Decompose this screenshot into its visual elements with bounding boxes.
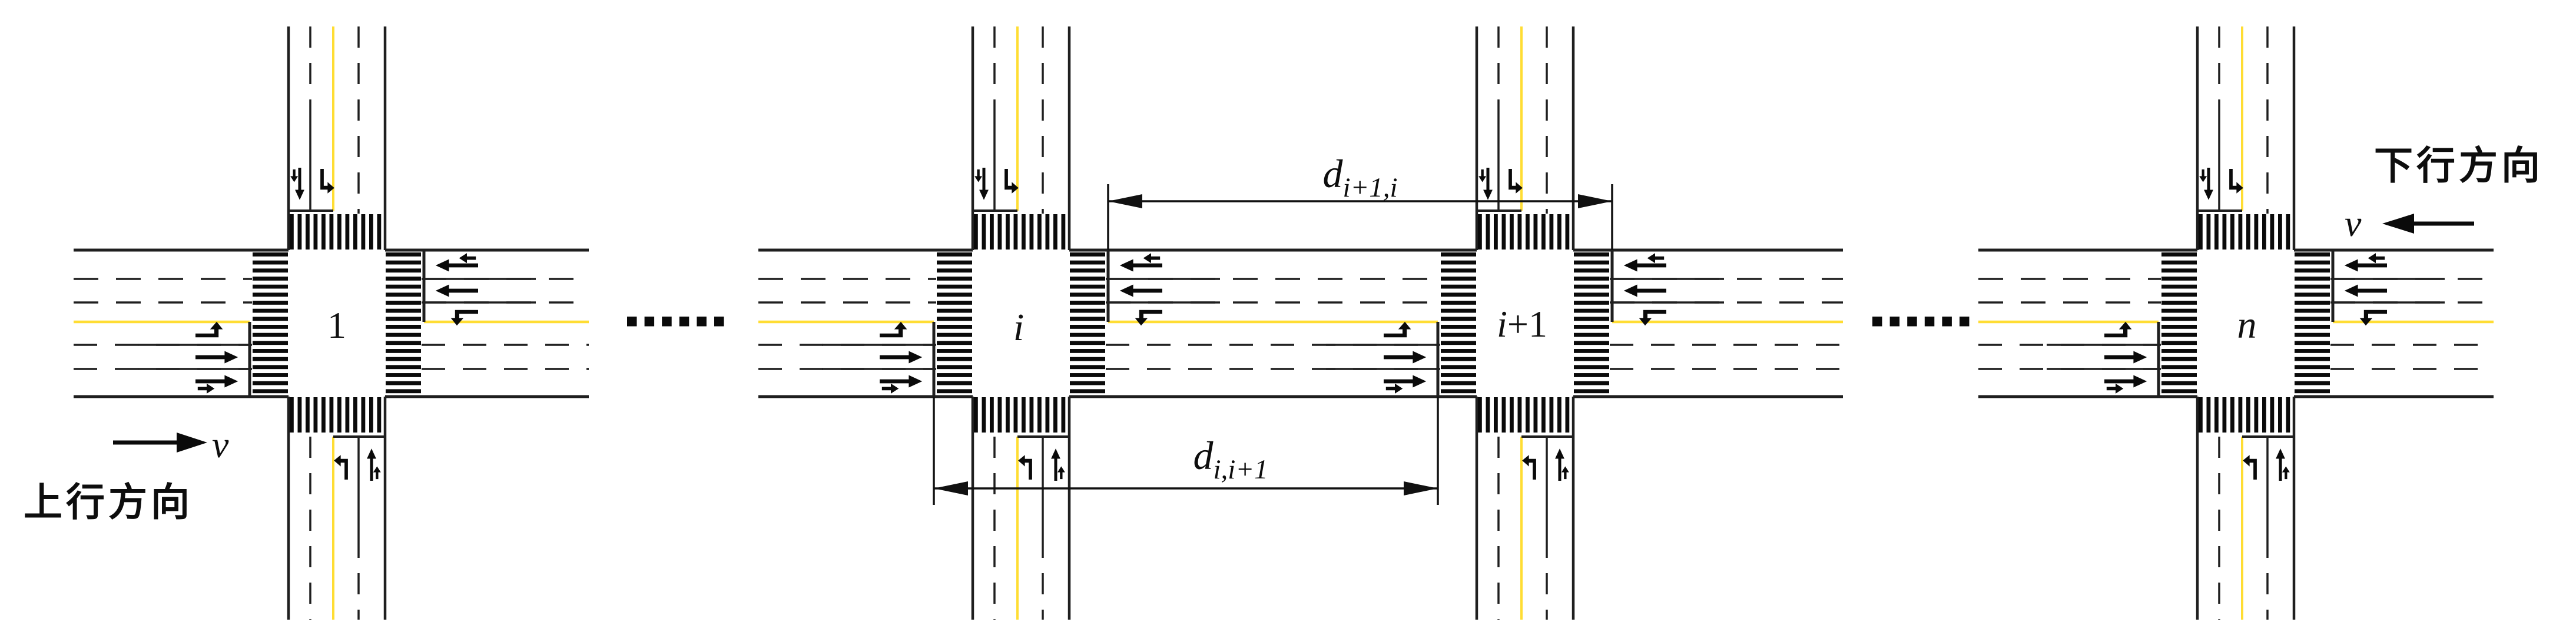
- crosswalk-north-stripe: [998, 214, 1002, 250]
- crosswalk-east-stripe: [386, 268, 421, 272]
- crosswalk-east-stripe: [1070, 365, 1105, 369]
- lane-marking-straight-uturn-arrow-icon-glyph: [2282, 467, 2290, 480]
- crosswalk-east-stripe: [386, 285, 421, 289]
- crosswalk-south-stripe: [377, 397, 382, 433]
- lane-marking-left-turn-arrow-icon: [334, 455, 348, 480]
- upstream-direction-label: 上行方向: [24, 481, 193, 524]
- crosswalk-east-stripe: [386, 381, 421, 385]
- lane-marking-straight-uturn-arrow-icon-glyph: [1386, 384, 1403, 394]
- crosswalk-east-stripe: [386, 301, 421, 305]
- lane-marking-straight-uturn-arrow-icon-glyph: [2345, 260, 2387, 272]
- crosswalk-east-stripe: [386, 277, 421, 281]
- dimension-arrowhead-right-icon: [1404, 481, 1438, 495]
- intersection-i-plus-1-label: i+1: [1497, 303, 1547, 345]
- crosswalk-north-stripe: [2246, 214, 2250, 250]
- crosswalk-east-stripe: [1574, 381, 1609, 385]
- lane-marking-straight-uturn-arrow-icon-glyph: [2276, 448, 2285, 481]
- lane-marking-straight-uturn-arrow-icon-glyph: [373, 467, 381, 480]
- crosswalk-west-stripe: [1441, 285, 1476, 289]
- crosswalk-east-stripe: [1070, 261, 1105, 265]
- crosswalk-east-stripe: [386, 357, 421, 361]
- crosswalk-east-stripe: [1070, 292, 1105, 297]
- crosswalk-south-stripe: [314, 397, 318, 433]
- crosswalk-south-stripe: [2286, 397, 2290, 433]
- crosswalk-west-stripe: [937, 373, 972, 377]
- crosswalk-east-stripe: [1574, 357, 1609, 361]
- road-geometry-layer: [74, 26, 2494, 620]
- crosswalk-south-stripe: [1478, 397, 1482, 433]
- crosswalk-south-stripe: [2246, 397, 2250, 433]
- lane-marking-left-turn-arrow-icon: [195, 322, 223, 337]
- crosswalk-west-stripe: [253, 325, 288, 329]
- crosswalk-east-stripe: [1070, 373, 1105, 377]
- ellipsis-right-icon: [1942, 317, 1952, 327]
- lane-marking-left-turn-arrow-icon-glyph: [2104, 322, 2131, 337]
- lane-marking-left-turn-arrow-icon: [2104, 322, 2131, 337]
- crosswalk-south-stripe: [321, 397, 326, 433]
- crosswalk-south-stripe: [990, 397, 994, 433]
- ellipsis-right-icon: [1872, 317, 1882, 327]
- lane-marking-straight-uturn-arrow-icon-glyph: [1384, 375, 1426, 388]
- ellipsis-right-icon: [1907, 317, 1917, 327]
- lane-marking-straight-arrow-icon-glyph: [436, 285, 478, 297]
- ellipsis-right-icon: [1960, 317, 1970, 327]
- crosswalk-west-stripe: [937, 309, 972, 313]
- crosswalk-north-stripe: [2278, 214, 2282, 250]
- crosswalk-east-stripe: [2295, 325, 2330, 329]
- crosswalk-south-stripe: [1550, 397, 1554, 433]
- crosswalk-north-stripe: [1053, 214, 1057, 250]
- crosswalk-east-stripe: [1070, 301, 1105, 305]
- arterial-intersections-diagram: di+1,i di,i+1 1 i i+1 n v 上行方向 v 下行方向: [0, 0, 2576, 632]
- lane-marking-left-turn-arrow-icon: [1522, 455, 1536, 480]
- crosswalk-east-stripe: [1070, 268, 1105, 272]
- ellipsis-left-icon: [714, 317, 724, 327]
- crosswalk-north-stripe: [290, 214, 294, 250]
- crosswalk-west-stripe: [1441, 365, 1476, 369]
- crosswalk-east-stripe: [1070, 252, 1105, 257]
- lane-marking-straight-uturn-arrow-icon-glyph: [2204, 168, 2213, 200]
- crosswalk-north-stripe: [1518, 214, 1522, 250]
- crosswalk-south-stripe: [2207, 397, 2211, 433]
- crosswalk-north-stripe: [2239, 214, 2243, 250]
- crosswalk-west-stripe: [2161, 349, 2197, 353]
- crosswalk-west-stripe: [1441, 268, 1476, 272]
- downstream-direction-annotation: v 下行方向: [2345, 145, 2544, 244]
- crosswalk-east-stripe: [1574, 333, 1609, 337]
- lane-marking-straight-uturn-arrow-icon: [195, 375, 238, 394]
- lane-marking-left-turn-arrow-icon-glyph: [2243, 455, 2257, 480]
- crosswalk-south-stripe: [1062, 397, 1066, 433]
- crosswalk-west-stripe: [2161, 317, 2197, 321]
- crosswalk-west-stripe: [253, 285, 288, 289]
- lane-marking-straight-uturn-arrow-icon-glyph: [198, 384, 215, 394]
- lane-marking-straight-uturn-arrow-icon-glyph: [436, 260, 478, 272]
- crosswalk-south-stripe: [1006, 397, 1010, 433]
- lane-marking-straight-uturn-arrow-icon: [367, 448, 381, 481]
- ellipsis-right-icon: [1925, 317, 1935, 327]
- lane-marking-straight-uturn-arrow-icon-glyph: [1555, 448, 1564, 481]
- lane-marking-straight-uturn-arrow-icon: [1478, 168, 1493, 200]
- crosswalk-east-stripe: [1574, 301, 1609, 305]
- crosswalk-west-stripe: [2161, 252, 2197, 257]
- crosswalk-west-stripe: [2161, 301, 2197, 305]
- lane-marking-straight-uturn-arrow-icon-glyph: [367, 448, 376, 481]
- crosswalk-south-stripe: [1510, 397, 1514, 433]
- crosswalk-west-stripe: [1441, 381, 1476, 385]
- crosswalk-west-stripe: [1441, 252, 1476, 257]
- crosswalk-north-stripe: [2199, 214, 2203, 250]
- crosswalk-north-stripe: [1566, 214, 1570, 250]
- crosswalk-west-stripe: [1441, 261, 1476, 265]
- lane-marking-straight-arrow-icon: [1384, 351, 1426, 364]
- crosswalk-west-stripe: [253, 252, 288, 257]
- lane-marking-straight-arrow-icon-glyph: [1624, 285, 1666, 297]
- crosswalk-east-stripe: [1574, 292, 1609, 297]
- crosswalk-north-stripe: [1014, 214, 1018, 250]
- crosswalk-south-stripe: [1566, 397, 1570, 433]
- crosswalk-south-stripe: [1037, 397, 1042, 433]
- crosswalk-west-stripe: [937, 365, 972, 369]
- lane-marking-left-turn-arrow-icon-glyph: [1522, 455, 1536, 480]
- lane-marking-straight-arrow-icon-glyph: [195, 351, 238, 364]
- crosswalk-west-stripe: [937, 381, 972, 385]
- dimension-arrowhead-left-icon: [934, 481, 968, 495]
- lane-marking-straight-uturn-arrow-icon-glyph: [295, 168, 304, 200]
- crosswalk-west-stripe: [1441, 333, 1476, 337]
- crosswalk-south-stripe: [1022, 397, 1026, 433]
- crosswalk-west-stripe: [2161, 292, 2197, 297]
- crosswalk-west-stripe: [253, 373, 288, 377]
- diagram-stage: di+1,i di,i+1 1 i i+1 n v 上行方向 v 下行方向: [0, 0, 2576, 632]
- crosswalk-west-stripe: [937, 261, 972, 265]
- crosswalk-east-stripe: [2295, 389, 2330, 393]
- crosswalk-west-stripe: [937, 357, 972, 361]
- lane-marking-straight-arrow-icon: [195, 351, 238, 364]
- ellipsis-left-icon: [679, 317, 689, 327]
- crosswalk-south-stripe: [1030, 397, 1034, 433]
- crosswalk-west-stripe: [937, 317, 972, 321]
- lane-marking-straight-uturn-arrow-icon: [2345, 253, 2387, 271]
- crosswalk-west-stripe: [1441, 325, 1476, 329]
- crosswalk-west-stripe: [937, 333, 972, 337]
- lane-marking-straight-arrow-icon-glyph: [1120, 285, 1162, 297]
- lane-marking-straight-uturn-arrow-icon-glyph: [880, 375, 922, 388]
- ellipsis-left-icon: [662, 317, 672, 327]
- lane-marking-straight-uturn-arrow-icon-glyph: [2104, 375, 2147, 388]
- intersection-i-label: i: [1013, 306, 1024, 349]
- crosswalk-east-stripe: [386, 365, 421, 369]
- lane-marking-straight-uturn-arrow-icon: [880, 375, 922, 394]
- downstream-speed-label: v: [2345, 202, 2362, 244]
- lane-marking-straight-arrow-icon: [2104, 351, 2147, 364]
- crosswalk-north-stripe: [1022, 214, 1026, 250]
- distance-label-bottom: di,i+1: [1193, 433, 1268, 485]
- crosswalk-north-stripe: [1046, 214, 1050, 250]
- left-arrow-icon: [2382, 214, 2414, 234]
- crosswalk-west-stripe: [253, 277, 288, 281]
- crosswalk-west-stripe: [1441, 277, 1476, 281]
- lane-marking-straight-arrow-icon-glyph: [1384, 351, 1426, 364]
- ellipsis-left-icon: [627, 317, 637, 327]
- crosswalk-east-stripe: [1070, 285, 1105, 289]
- lane-marking-straight-uturn-arrow-icon: [1624, 253, 1666, 271]
- lane-marking-left-turn-arrow-icon: [1018, 455, 1032, 480]
- crosswalk-east-stripe: [1070, 381, 1105, 385]
- crosswalk-west-stripe: [2161, 365, 2197, 369]
- crosswalk-east-stripe: [1574, 268, 1609, 272]
- crosswalk-west-stripe: [937, 252, 972, 257]
- crosswalk-east-stripe: [2295, 365, 2330, 369]
- ellipsis-right-icon: [1890, 317, 1900, 327]
- lane-marking-straight-uturn-arrow-icon-glyph: [1647, 253, 1665, 263]
- crosswalk-north-stripe: [306, 214, 310, 250]
- crosswalk-south-stripe: [306, 397, 310, 433]
- crosswalk-north-stripe: [1030, 214, 1034, 250]
- crosswalk-north-stripe: [321, 214, 326, 250]
- crosswalk-east-stripe: [2295, 301, 2330, 305]
- crosswalk-west-stripe: [1441, 349, 1476, 353]
- crosswalk-east-stripe: [386, 341, 421, 345]
- crosswalk-west-stripe: [1441, 341, 1476, 345]
- crosswalk-west-stripe: [2161, 341, 2197, 345]
- crosswalk-west-stripe: [253, 365, 288, 369]
- crosswalk-west-stripe: [937, 325, 972, 329]
- crosswalk-north-stripe: [1478, 214, 1482, 250]
- crosswalk-west-stripe: [937, 268, 972, 272]
- crosswalk-west-stripe: [937, 301, 972, 305]
- crosswalk-south-stripe: [1046, 397, 1050, 433]
- crosswalk-east-stripe: [1070, 309, 1105, 313]
- crosswalk-east-stripe: [1070, 333, 1105, 337]
- intersection-n-label: n: [2237, 304, 2257, 347]
- crosswalk-north-stripe: [369, 214, 373, 250]
- crosswalk-north-stripe: [330, 214, 334, 250]
- crosswalk-east-stripe: [1574, 389, 1609, 393]
- crosswalk-west-stripe: [1441, 317, 1476, 321]
- crosswalk-west-stripe: [1441, 301, 1476, 305]
- lane-marking-straight-uturn-arrow-icon-glyph: [974, 169, 982, 182]
- lane-marking-straight-uturn-arrow-icon-glyph: [459, 253, 476, 263]
- crosswalk-north-stripe: [1502, 214, 1506, 250]
- crosswalk-west-stripe: [937, 349, 972, 353]
- crosswalk-north-stripe: [1557, 214, 1561, 250]
- crosswalk-south-stripe: [353, 397, 357, 433]
- crosswalk-south-stripe: [1014, 397, 1018, 433]
- crosswalk-west-stripe: [2161, 285, 2197, 289]
- lane-marking-left-turn-arrow-icon-glyph: [1384, 322, 1411, 337]
- lane-marking-left-turn-arrow-icon-glyph: [1018, 455, 1032, 480]
- crosswalk-north-stripe: [1550, 214, 1554, 250]
- crosswalk-west-stripe: [1441, 292, 1476, 297]
- crosswalk-south-stripe: [1494, 397, 1498, 433]
- crosswalk-north-stripe: [1486, 214, 1490, 250]
- crosswalk-west-stripe: [253, 349, 288, 353]
- downstream-direction-label: 下行方向: [2374, 145, 2544, 188]
- crosswalk-west-stripe: [1441, 357, 1476, 361]
- lane-marking-straight-uturn-arrow-icon: [1384, 375, 1426, 394]
- crosswalk-west-stripe: [2161, 309, 2197, 313]
- crosswalk-east-stripe: [2295, 381, 2330, 385]
- crosswalk-west-stripe: [253, 309, 288, 313]
- crosswalk-east-stripe: [1574, 261, 1609, 265]
- lane-marking-straight-arrow-icon: [1624, 285, 1666, 297]
- crosswalk-north-stripe: [346, 214, 350, 250]
- crosswalk-east-stripe: [2295, 277, 2330, 281]
- crosswalk-north-stripe: [1006, 214, 1010, 250]
- crosswalk-east-stripe: [386, 261, 421, 265]
- crosswalk-east-stripe: [2295, 333, 2330, 337]
- upstream-direction-annotation: v 上行方向: [24, 424, 229, 524]
- lane-marking-straight-uturn-arrow-icon-glyph: [979, 168, 989, 200]
- crosswalk-south-stripe: [2270, 397, 2275, 433]
- crosswalk-west-stripe: [2161, 389, 2197, 393]
- crosswalk-east-stripe: [1574, 349, 1609, 353]
- crosswalk-north-stripe: [2270, 214, 2275, 250]
- crosswalk-south-stripe: [1053, 397, 1057, 433]
- dimension-arrowhead-left-icon: [1108, 194, 1142, 208]
- crosswalk-east-stripe: [386, 325, 421, 329]
- crosswalk-south-stripe: [2214, 397, 2219, 433]
- lane-marking-straight-arrow-icon: [2345, 285, 2387, 297]
- lane-marking-left-turn-arrow-icon-glyph: [195, 322, 223, 337]
- lane-marking-straight-uturn-arrow-icon: [1120, 253, 1162, 271]
- crosswalk-north-stripe: [1062, 214, 1066, 250]
- crosswalk-south-stripe: [998, 397, 1002, 433]
- crosswalk-south-stripe: [1557, 397, 1561, 433]
- crosswalk-south-stripe: [1534, 397, 1538, 433]
- crosswalk-south-stripe: [1541, 397, 1546, 433]
- lane-marking-straight-arrow-icon: [1120, 285, 1162, 297]
- lane-marking-left-turn-arrow-icon-glyph: [880, 322, 907, 337]
- crosswalk-west-stripe: [1441, 389, 1476, 393]
- crosswalk-south-stripe: [1486, 397, 1490, 433]
- crosswalk-north-stripe: [1526, 214, 1530, 250]
- crosswalk-east-stripe: [1574, 373, 1609, 377]
- crosswalk-east-stripe: [2295, 373, 2330, 377]
- crosswalk-west-stripe: [937, 341, 972, 345]
- crosswalk-north-stripe: [2286, 214, 2290, 250]
- lane-marking-straight-arrow-icon: [880, 351, 922, 364]
- crosswalk-north-stripe: [2207, 214, 2211, 250]
- crosswalk-east-stripe: [1574, 365, 1609, 369]
- crosswalk-south-stripe: [2230, 397, 2234, 433]
- crosswalk-north-stripe: [982, 214, 986, 250]
- crosswalk-east-stripe: [2295, 341, 2330, 345]
- crosswalk-east-stripe: [1574, 285, 1609, 289]
- crosswalk-east-stripe: [1070, 317, 1105, 321]
- crosswalk-west-stripe: [937, 389, 972, 393]
- crosswalk-east-stripe: [2295, 357, 2330, 361]
- crosswalk-west-stripe: [1441, 373, 1476, 377]
- crosswalk-east-stripe: [2295, 285, 2330, 289]
- crosswalk-east-stripe: [1574, 277, 1609, 281]
- lane-marking-straight-uturn-arrow-icon-glyph: [2107, 384, 2124, 394]
- crosswalk-south-stripe: [290, 397, 294, 433]
- crosswalk-east-stripe: [1070, 389, 1105, 393]
- crosswalk-south-stripe: [2278, 397, 2282, 433]
- crosswalk-south-stripe: [1526, 397, 1530, 433]
- lane-marking-straight-uturn-arrow-icon: [974, 168, 989, 200]
- lane-marking-straight-uturn-arrow-icon-glyph: [1051, 448, 1060, 481]
- crosswalk-south-stripe: [362, 397, 366, 433]
- crosswalk-east-stripe: [2295, 268, 2330, 272]
- crosswalk-west-stripe: [2161, 357, 2197, 361]
- crosswalk-north-stripe: [1494, 214, 1498, 250]
- crosswalk-west-stripe: [253, 357, 288, 361]
- crosswalk-north-stripe: [2262, 214, 2266, 250]
- crosswalk-east-stripe: [386, 373, 421, 377]
- crosswalk-north-stripe: [1510, 214, 1514, 250]
- crosswalk-north-stripe: [353, 214, 357, 250]
- lane-marking-straight-uturn-arrow-icon: [290, 168, 304, 200]
- upstream-speed-label: v: [212, 424, 229, 465]
- crosswalk-north-stripe: [2230, 214, 2234, 250]
- lane-marking-straight-uturn-arrow-icon-glyph: [1057, 467, 1065, 480]
- lane-marking-straight-uturn-arrow-icon-glyph: [1561, 467, 1569, 480]
- lane-marking-left-turn-arrow-icon: [1384, 322, 1411, 337]
- ellipsis-left-icon: [645, 317, 655, 327]
- crosswalk-east-stripe: [1574, 317, 1609, 321]
- crosswalk-east-stripe: [1574, 325, 1609, 329]
- lane-marking-straight-uturn-arrow-icon-glyph: [1143, 253, 1161, 263]
- crosswalk-west-stripe: [2161, 381, 2197, 385]
- crosswalk-south-stripe: [2262, 397, 2266, 433]
- lane-marking-straight-uturn-arrow-icon-glyph: [882, 384, 899, 394]
- lane-marking-left-turn-arrow-icon: [2243, 455, 2257, 480]
- crosswalk-north-stripe: [362, 214, 366, 250]
- lane-marking-straight-uturn-arrow-icon-glyph: [195, 375, 238, 388]
- crosswalk-west-stripe: [937, 285, 972, 289]
- crosswalk-south-stripe: [1502, 397, 1506, 433]
- lane-marking-straight-uturn-arrow-icon-glyph: [1483, 168, 1493, 200]
- crosswalk-west-stripe: [253, 261, 288, 265]
- crosswalk-south-stripe: [2223, 397, 2227, 433]
- lane-marking-straight-uturn-arrow-icon: [2276, 448, 2290, 481]
- crosswalk-east-stripe: [386, 349, 421, 353]
- crosswalk-east-stripe: [2295, 349, 2330, 353]
- lane-marking-straight-uturn-arrow-icon-glyph: [1120, 260, 1162, 272]
- lane-marking-straight-arrow-icon: [436, 285, 478, 297]
- crosswalk-west-stripe: [253, 292, 288, 297]
- crosswalk-west-stripe: [2161, 261, 2197, 265]
- crosswalk-west-stripe: [2161, 277, 2197, 281]
- crosswalk-east-stripe: [2295, 252, 2330, 257]
- lane-marking-straight-arrow-icon-glyph: [880, 351, 922, 364]
- lane-marking-straight-arrow-icon-glyph: [2345, 285, 2387, 297]
- crosswalk-west-stripe: [1441, 309, 1476, 313]
- lane-marking-straight-uturn-arrow-icon: [1555, 448, 1569, 481]
- crosswalk-south-stripe: [337, 397, 342, 433]
- crosswalk-east-stripe: [2295, 317, 2330, 321]
- lane-marking-straight-uturn-arrow-icon: [2199, 168, 2213, 200]
- crosswalk-east-stripe: [386, 252, 421, 257]
- crosswalk-north-stripe: [2214, 214, 2219, 250]
- crosswalk-east-stripe: [2295, 292, 2330, 297]
- crosswalk-west-stripe: [253, 317, 288, 321]
- crosswalk-north-stripe: [1037, 214, 1042, 250]
- crosswalk-south-stripe: [1518, 397, 1522, 433]
- crosswalk-north-stripe: [377, 214, 382, 250]
- lane-marking-straight-uturn-arrow-icon-glyph: [1478, 169, 1486, 182]
- crosswalk-west-stripe: [253, 268, 288, 272]
- crosswalk-north-stripe: [974, 214, 978, 250]
- crosswalk-east-stripe: [1070, 349, 1105, 353]
- lane-marking-straight-uturn-arrow-icon-glyph: [2368, 253, 2385, 263]
- lane-marking-straight-uturn-arrow-icon-glyph: [1624, 260, 1666, 272]
- crosswalk-south-stripe: [2255, 397, 2259, 433]
- crosswalk-south-stripe: [346, 397, 350, 433]
